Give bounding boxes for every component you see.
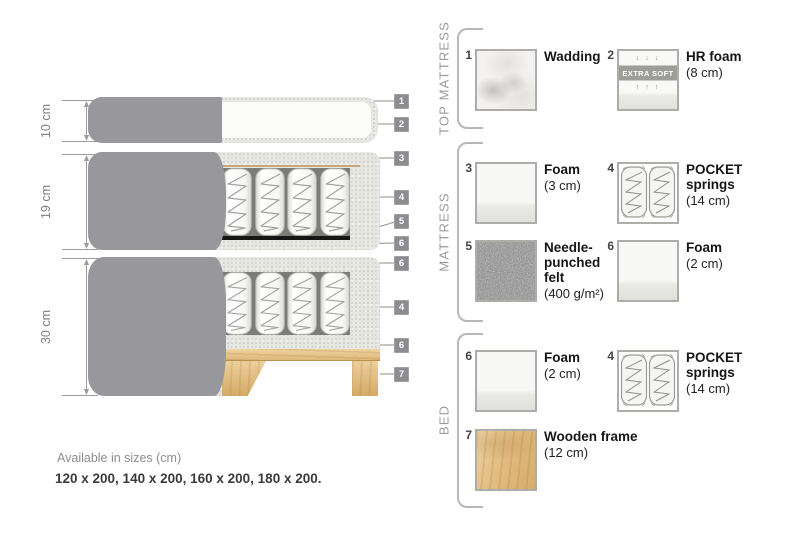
legend-item-foam-3cm: 3 Foam (3 cm): [456, 162, 581, 224]
layer-tag-7: 7: [394, 367, 409, 382]
pocket-springs-icon: [620, 353, 676, 407]
felt-texture: [477, 242, 535, 300]
wadding-swatch: [475, 49, 537, 111]
bed-springs-window: [222, 272, 350, 335]
legend-item-pocket-springs: 4 POCKET springs (14 cm): [598, 162, 742, 224]
layer-tag-6b: 6: [394, 256, 409, 271]
wood-swatch: [475, 429, 537, 491]
pocket-springs-swatch: [617, 162, 679, 224]
section-label-mattress: MATTRESS: [437, 192, 452, 271]
hr-foam-swatch: ↓ ↓ ↓ EXTRA SOFT ↑ ↑ ↑: [617, 49, 679, 111]
layer-tag-4: 4: [394, 190, 409, 205]
dimension-label-10cm: 10 cm: [39, 104, 53, 138]
item-size: (2 cm): [686, 256, 723, 272]
item-name: Foam: [544, 162, 581, 177]
layer-tag-3: 3: [394, 151, 409, 166]
item-name: Wooden frame: [544, 429, 638, 444]
extra-soft-badge: EXTRA SOFT: [618, 65, 678, 81]
legend-item-foam-2cm-bed: 6 Foam (2 cm): [456, 350, 581, 412]
pocket-springs-swatch: [617, 350, 679, 412]
item-name: Wadding: [544, 49, 601, 64]
item-number: 7: [456, 429, 472, 443]
felt-swatch: [475, 240, 537, 302]
section-label-top-mattress: TOP MATTRESS: [437, 21, 452, 135]
item-size: (2 cm): [544, 366, 581, 382]
item-name: Foam: [544, 350, 581, 365]
wooden-leg-right: [352, 361, 378, 396]
mattress-construction-infographic: 10 cm 19 cm 30 cm: [0, 0, 800, 533]
item-number: 5: [456, 240, 472, 254]
bed-cover: [88, 257, 226, 396]
bed-cutaway: [210, 257, 380, 396]
foam-swatch: [475, 162, 537, 224]
foam-swatch: [475, 350, 537, 412]
legend-item-foam-2cm: 6 Foam (2 cm): [598, 240, 723, 302]
foam-swatch: [617, 240, 679, 302]
mattress-pocket-springs: [222, 168, 350, 236]
legend-item-felt: 5 Needle- punched felt (400 g/m²): [456, 240, 604, 302]
mattress-cutaway: [210, 152, 380, 250]
wooden-slat: [222, 349, 380, 361]
item-number: 3: [456, 162, 472, 176]
item-name: POCKET springs: [686, 162, 742, 192]
available-sizes-list: 120 x 200, 140 x 200, 160 x 200, 180 x 2…: [55, 471, 322, 486]
item-size: (14 cm): [686, 193, 742, 209]
legend-item-wadding: 1 Wadding: [456, 49, 601, 111]
layer-tag-6c: 6: [394, 338, 409, 353]
item-name: HR foam: [686, 49, 742, 64]
item-number: 2: [598, 49, 614, 63]
layer-tag-6: 6: [394, 236, 409, 251]
legend-item-hr-foam: 2 ↓ ↓ ↓ EXTRA SOFT ↑ ↑ ↑ HR foam (8 cm): [598, 49, 742, 111]
item-size: (8 cm): [686, 65, 742, 81]
layer-tag-2: 2: [394, 117, 409, 132]
item-size: (3 cm): [544, 178, 581, 194]
item-number: 1: [456, 49, 472, 63]
top-mattress-cutaway: [220, 97, 378, 143]
bed-wooden-frame: [222, 349, 380, 396]
item-name: Needle- punched felt: [544, 240, 604, 285]
item-number: 6: [456, 350, 472, 364]
available-sizes-title: Available in sizes (cm): [57, 451, 181, 465]
item-number: 6: [598, 240, 614, 254]
legend-item-wooden-frame: 7 Wooden frame (12 cm): [456, 429, 638, 491]
item-size: (400 g/m²): [544, 286, 604, 302]
wooden-leg-left: [222, 361, 266, 396]
mattress-springs-window: [222, 168, 350, 236]
dimension-label-30cm: 30 cm: [39, 310, 53, 344]
arrows-up-icon: ↑ ↑ ↑: [636, 84, 660, 91]
item-size: (12 cm): [544, 445, 638, 461]
legend-item-pocket-springs-bed: 4 POCKET springs (14 cm): [598, 350, 742, 412]
layer-tag-5: 5: [394, 214, 409, 229]
layer-tag-4b: 4: [394, 300, 409, 315]
item-name: Foam: [686, 240, 723, 255]
mattress-top-edge-line: [218, 165, 360, 167]
item-name: POCKET springs: [686, 350, 742, 380]
section-label-bed: BED: [437, 405, 452, 435]
item-number: 4: [598, 162, 614, 176]
layer-tag-1: 1: [394, 94, 409, 109]
pocket-springs-icon: [620, 165, 676, 219]
top-mattress-interior: [220, 102, 371, 138]
dimension-label-19cm: 19 cm: [39, 185, 53, 219]
mattress-felt-line: [222, 236, 350, 240]
bed-pocket-springs: [222, 272, 350, 335]
item-number: 4: [598, 350, 614, 364]
item-size: (14 cm): [686, 381, 742, 397]
arrows-down-icon: ↓ ↓ ↓: [636, 55, 660, 62]
mattress-cover: [88, 152, 226, 250]
top-mattress-cover: [88, 97, 222, 143]
